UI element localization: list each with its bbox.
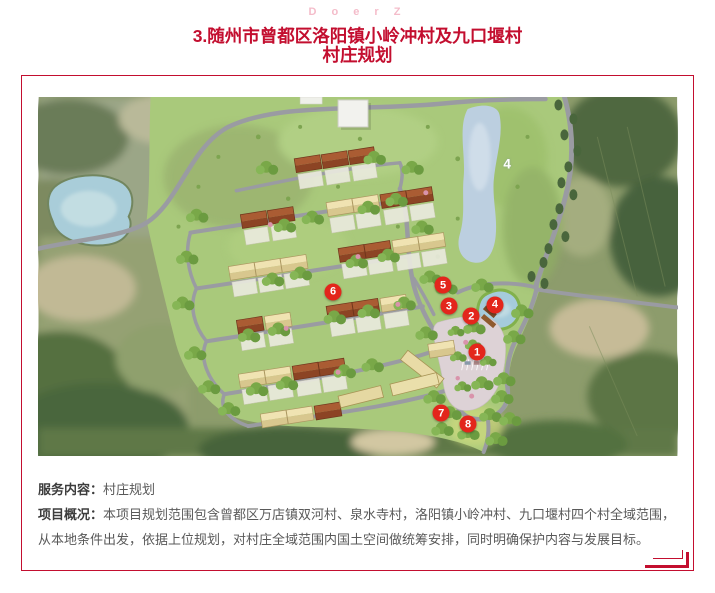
map-marker-2: 2 xyxy=(463,308,480,325)
map-marker-3: 3 xyxy=(440,298,457,315)
map-marker-4: 4 xyxy=(486,296,503,313)
map-marker-5: 5 xyxy=(435,277,452,294)
corner-ornament-large xyxy=(645,552,689,568)
page-title-line2: 村庄规划 xyxy=(0,46,715,65)
overview-line: 项目概况：本项目规划范围包含曾都区万店镇双河村、泉水寺村，洛阳镇小岭冲村、九口堰… xyxy=(38,502,682,552)
planning-map: 12345678 4 xyxy=(38,97,678,456)
project-details: 服务内容：村庄规划 项目概况：本项目规划范围包含曾都区万店镇双河村、泉水寺村，洛… xyxy=(38,477,682,552)
watermark: D o e r Z xyxy=(0,6,715,18)
map-marker-7: 7 xyxy=(433,405,450,422)
service-value: 村庄规划 xyxy=(103,482,155,497)
map-marker-6: 6 xyxy=(325,283,342,300)
map-marker-1: 1 xyxy=(469,344,486,361)
overview-label: 项目概况： xyxy=(38,507,103,522)
map-markers-layer: 12345678 xyxy=(38,97,678,456)
page-title-line1: 3.随州市曾都区洛阳镇小岭冲村及九口堰村 xyxy=(0,27,715,46)
service-line: 服务内容：村庄规划 xyxy=(38,477,682,502)
service-label: 服务内容： xyxy=(38,482,103,497)
overview-value: 本项目规划范围包含曾都区万店镇双河村、泉水寺村，洛阳镇小岭冲村、九口堰村四个村全… xyxy=(38,507,675,547)
map-marker-8: 8 xyxy=(460,416,477,433)
page-title: 3.随州市曾都区洛阳镇小岭冲村及九口堰村 村庄规划 xyxy=(0,27,715,65)
lake-number-label: 4 xyxy=(503,156,511,171)
